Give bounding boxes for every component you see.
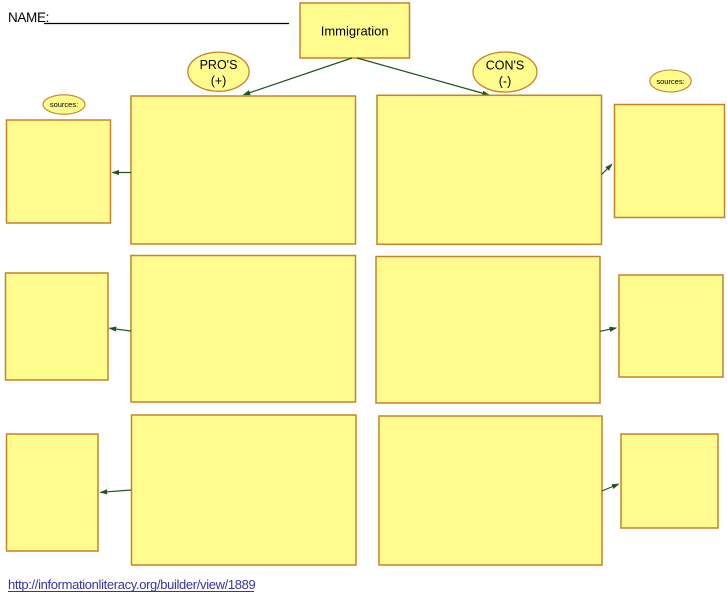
svg-text:NAME:: NAME: — [8, 10, 49, 25]
svg-text:Immigration: Immigration — [321, 24, 389, 39]
svg-text:http://informationliteracy.org: http://informationliteracy.org/builder/v… — [8, 577, 256, 592]
svg-text:sources:: sources: — [656, 77, 684, 86]
svg-text:(+): (+) — [211, 74, 227, 88]
svg-text:(-): (-) — [499, 75, 512, 89]
svg-text:CON'S: CON'S — [486, 59, 525, 73]
svg-text:PRO'S: PRO'S — [200, 58, 238, 72]
svg-text:sources:: sources: — [50, 100, 78, 109]
